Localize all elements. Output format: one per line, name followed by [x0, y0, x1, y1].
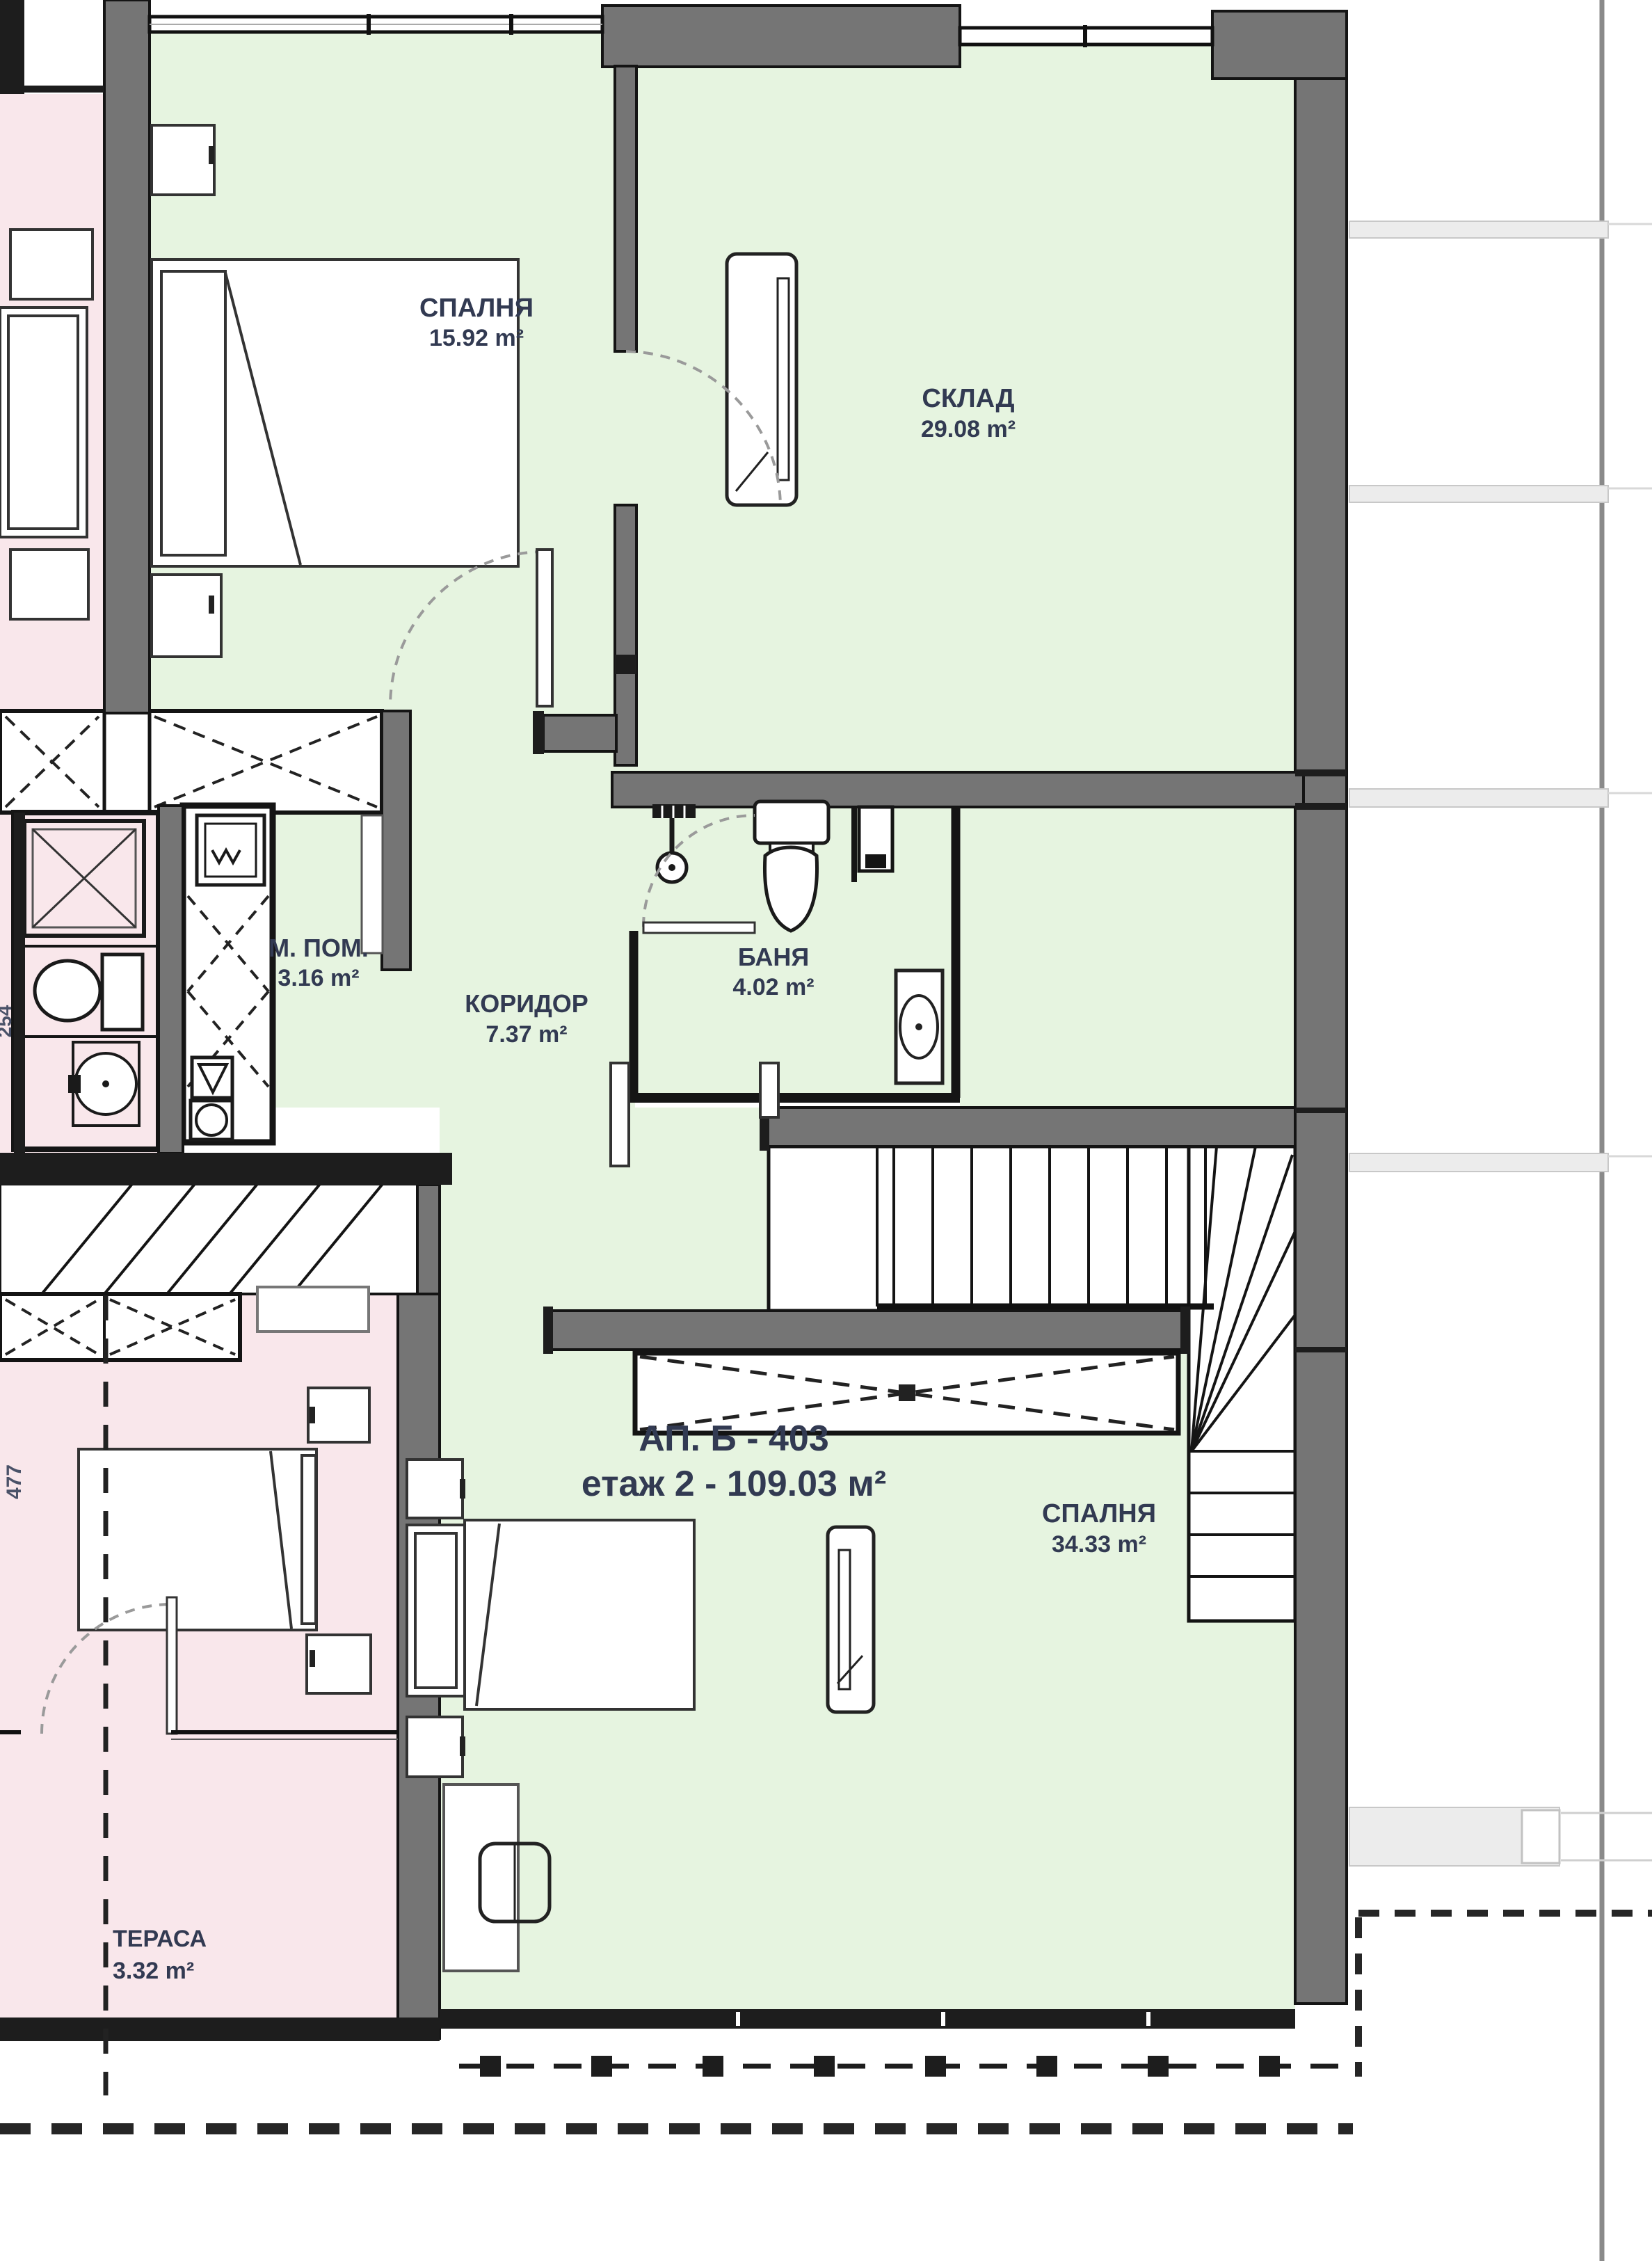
- radiator-icon-bedroom2: [828, 1527, 874, 1712]
- apartment-label-line2: етаж 2 - 109.03 м²: [582, 1464, 886, 1504]
- window-band-top-right: [960, 25, 1212, 47]
- neighbor-stairs-icon: [0, 1184, 417, 1294]
- floor-plan-page: СПАЛНЯ 15.92 m² СКЛАД 29.08 m² М. ПОМ. 3…: [0, 0, 1652, 2261]
- shower-cabin-icon: [24, 821, 144, 936]
- wardrobe-strip-top: [0, 711, 382, 813]
- neighbor-top-furniture: [0, 230, 93, 619]
- room-label-bedroom2-area: 34.33 m²: [1052, 1531, 1146, 1558]
- room-label-storage-area: 29.08 m²: [921, 416, 1016, 442]
- room-label-bedroom1-area: 15.92 m²: [429, 325, 524, 351]
- utility-sink-icon: [191, 1057, 232, 1140]
- floor-plan-drawing: СПАЛНЯ 15.92 m² СКЛАД 29.08 m² М. ПОМ. 3…: [0, 0, 1652, 2261]
- bathroom-shaft-inner: [865, 854, 886, 868]
- room-label-terrace-name: ТЕРАСА: [113, 1926, 207, 1952]
- washing-machine-icon: [197, 815, 264, 885]
- room-label-bath-area: 4.02 m²: [732, 974, 814, 1000]
- room-label-bedroom2-name: СПАЛНЯ: [1042, 1499, 1156, 1528]
- radiator-icon-storage: [727, 254, 796, 505]
- room-label-corridor-name: КОРИДОР: [465, 989, 588, 1018]
- room-label-utility-area: 3.16 m²: [278, 965, 359, 991]
- dimension-label-477: 477: [3, 1464, 26, 1499]
- room-label-terrace-area: 3.32 m²: [113, 1958, 194, 1984]
- utility-room: [183, 806, 273, 1142]
- room-label-storage-name: СКЛАД: [922, 384, 1014, 413]
- terrace-boundary-dots: [459, 2056, 1349, 2077]
- room-label-bedroom1-name: СПАЛНЯ: [419, 294, 534, 323]
- dimension-label-254: 254: [0, 1005, 15, 1037]
- window-band-top-left: [150, 14, 602, 35]
- room-label-bath-name: БАНЯ: [738, 943, 809, 971]
- apartment-label-line1: АП. Б - 403: [639, 1419, 828, 1459]
- room-label-utility-name: М. ПОМ.: [268, 934, 369, 962]
- room-label-corridor-area: 7.37 m²: [486, 1021, 567, 1048]
- window-corridor-stub: [362, 815, 383, 953]
- sink-icon-bathroom: [896, 970, 943, 1083]
- sink-icon: [68, 1042, 139, 1126]
- balcony-slabs: [1349, 0, 1652, 2261]
